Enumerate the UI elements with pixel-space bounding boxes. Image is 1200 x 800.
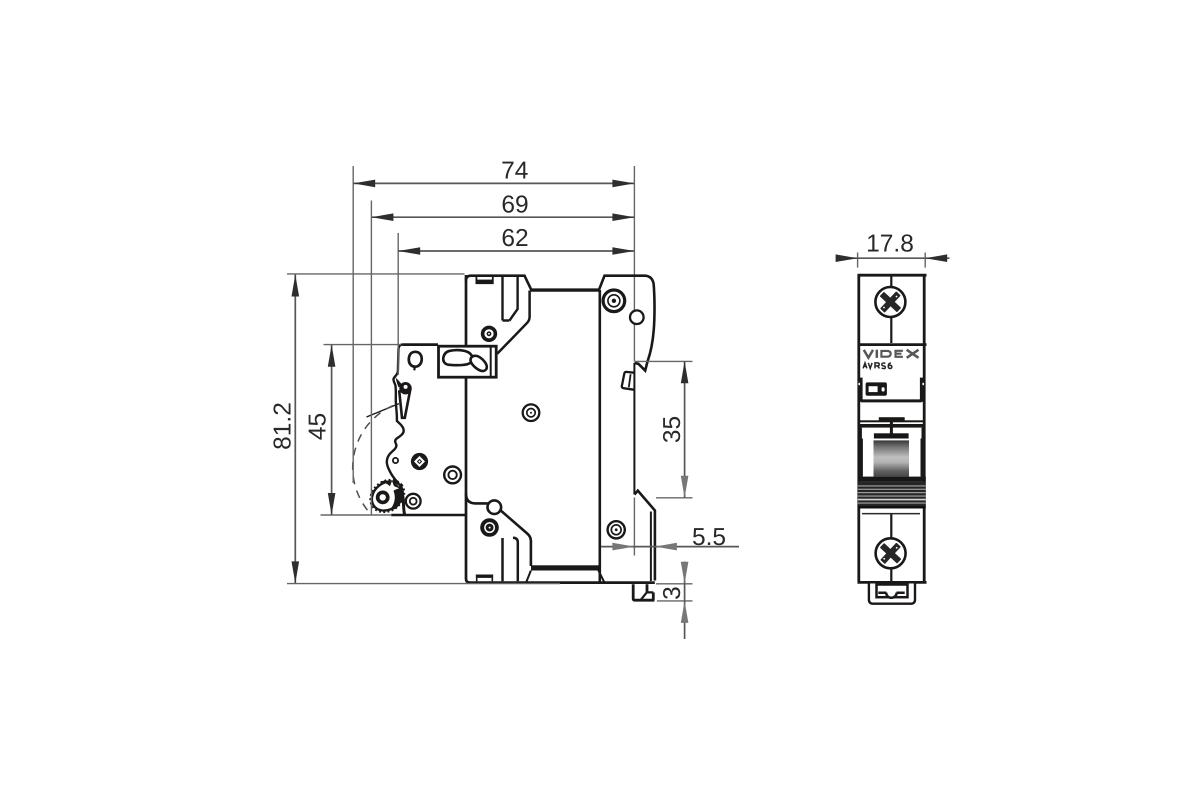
svg-text:81.2: 81.2 — [270, 402, 297, 450]
svg-text:17.8: 17.8 — [866, 230, 914, 257]
svg-text:35: 35 — [659, 416, 686, 443]
svg-text:69: 69 — [501, 191, 528, 218]
svg-text:5.5: 5.5 — [692, 524, 726, 551]
svg-text:45: 45 — [305, 413, 332, 440]
svg-text:74: 74 — [501, 158, 528, 185]
svg-text:3: 3 — [659, 586, 686, 600]
svg-text:62: 62 — [501, 225, 528, 252]
